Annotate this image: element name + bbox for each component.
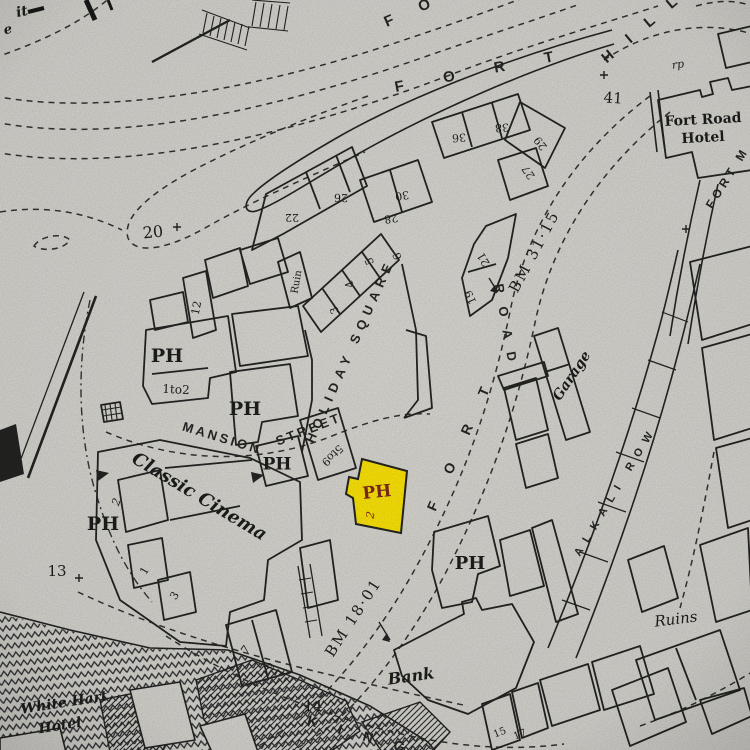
map-canvas: iteF O R TH I L LF O41rpFort RoadHotelFO… <box>0 0 750 750</box>
vignette-overlay <box>0 0 750 750</box>
map-page: iteF O R TH I L LF O41rpFort RoadHotelFO… <box>0 0 750 750</box>
